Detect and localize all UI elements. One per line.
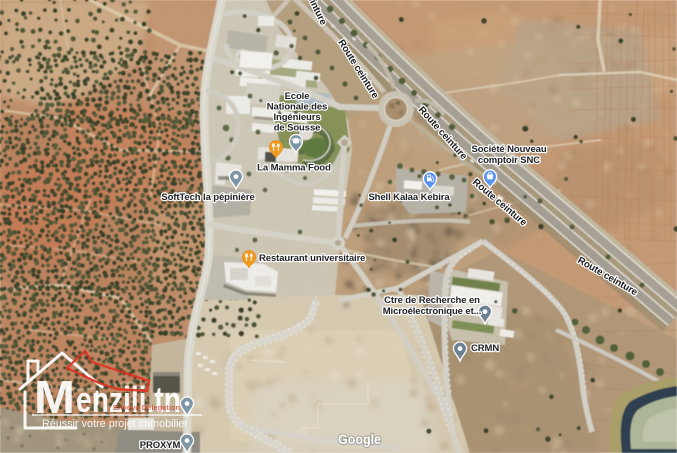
svg-text:Microélectronique et...: Microélectronique et...	[383, 306, 482, 317]
svg-text:Société Nouveau: Société Nouveau	[471, 144, 546, 155]
svg-text:Nationale des: Nationale des	[267, 102, 327, 113]
svg-text:Ctre de Recherche en: Ctre de Recherche en	[384, 295, 480, 306]
svg-text:PROXYM: PROXYM	[140, 440, 181, 451]
svg-text:Ecole: Ecole	[285, 91, 310, 102]
svg-text:Réussir votre projet immobilie: Réussir votre projet immobilier	[42, 418, 188, 430]
svg-text:enzili.tn: enzili.tn	[76, 379, 181, 420]
svg-text:Ingénieurs: Ingénieurs	[273, 112, 320, 123]
svg-text:CRMN: CRMN	[471, 343, 499, 354]
svg-text:Envoye Delegation: Envoye Delegation	[113, 403, 181, 412]
svg-text:Restaurant universitaire: Restaurant universitaire	[259, 253, 365, 264]
svg-text:de Sousse: de Sousse	[274, 123, 321, 134]
svg-text:SoftTech la pépinière: SoftTech la pépinière	[161, 192, 254, 203]
svg-text:Google: Google	[338, 432, 381, 447]
svg-text:comptoir SNC: comptoir SNC	[478, 155, 540, 166]
svg-text:La Mamma Food: La Mamma Food	[257, 163, 331, 174]
svg-text:Shell Kalaa Kebira: Shell Kalaa Kebira	[368, 192, 450, 203]
